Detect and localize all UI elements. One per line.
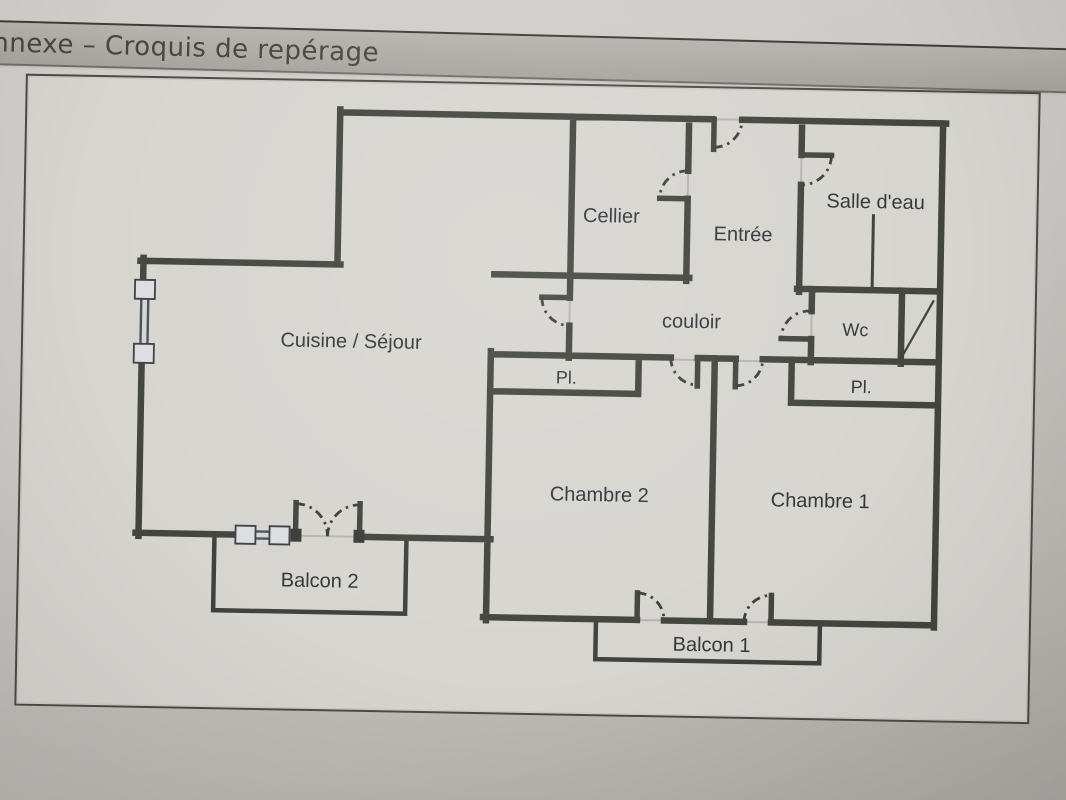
- photographed-floorplan-page: { "banner": { "title": "nnexe – Croquis …: [0, 0, 1066, 800]
- window-frame-block: [235, 526, 255, 544]
- window-frame-block: [269, 526, 289, 544]
- room-label-placard-chambre1: Pl.: [851, 377, 872, 397]
- room-label-entree: Entrée: [713, 223, 772, 246]
- room-label-chambre-1: Chambre 1: [771, 489, 870, 513]
- door-jamb-block: [353, 530, 364, 543]
- plan-sheet: CellierEntréeSalle d'eaucouloirWcCuisine…: [15, 75, 1039, 723]
- window-frame-block: [135, 280, 155, 299]
- room-label-balcon-2: Balcon 2: [281, 569, 359, 592]
- room-label-balcon-1: Balcon 1: [672, 634, 750, 657]
- room-label-couloir: couloir: [662, 310, 722, 333]
- room-label-chambre-2: Chambre 2: [550, 483, 649, 507]
- room-label-cuisine-sejour: Cuisine / Séjour: [280, 329, 422, 354]
- room-label-placard-couloir: Pl.: [556, 367, 577, 387]
- room-label-salle-deau: Salle d'eau: [826, 190, 925, 214]
- door-jamb-block: [290, 529, 301, 542]
- room-label-wc: Wc: [842, 320, 868, 340]
- floorplan-sketch: CellierEntréeSalle d'eaucouloirWcCuisine…: [0, 0, 1066, 800]
- room-label-cellier: Cellier: [583, 205, 640, 228]
- shower-partition-line: [872, 214, 873, 288]
- window-frame-block: [134, 344, 154, 363]
